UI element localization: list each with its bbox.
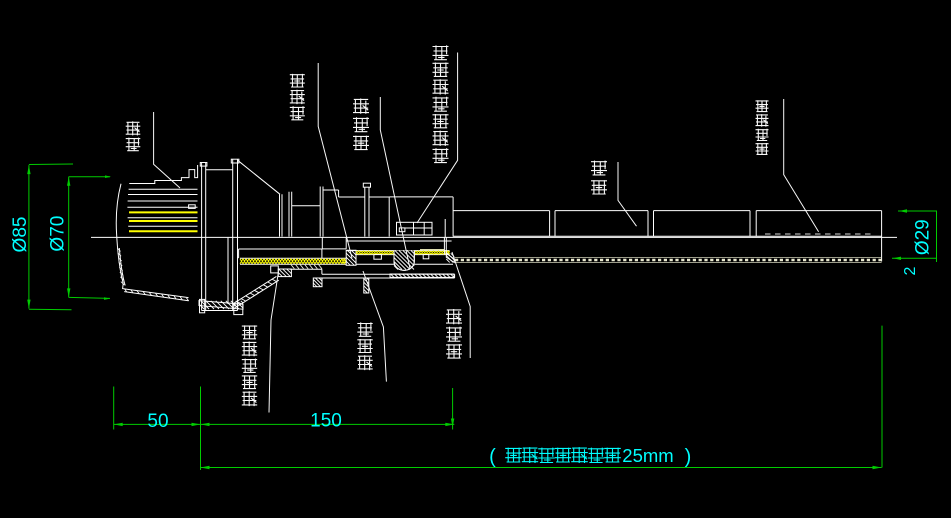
svg-text:Ø70: Ø70 — [48, 216, 69, 252]
svg-text:(: ( — [489, 446, 496, 468]
svg-text:2: 2 — [902, 266, 919, 275]
svg-text:50: 50 — [147, 411, 168, 432]
svg-text:Ø85: Ø85 — [10, 217, 31, 253]
svg-text:150: 150 — [310, 411, 342, 432]
svg-text:25mm: 25mm — [622, 445, 673, 466]
svg-text:): ) — [685, 446, 692, 468]
svg-text:Ø29: Ø29 — [913, 219, 934, 255]
